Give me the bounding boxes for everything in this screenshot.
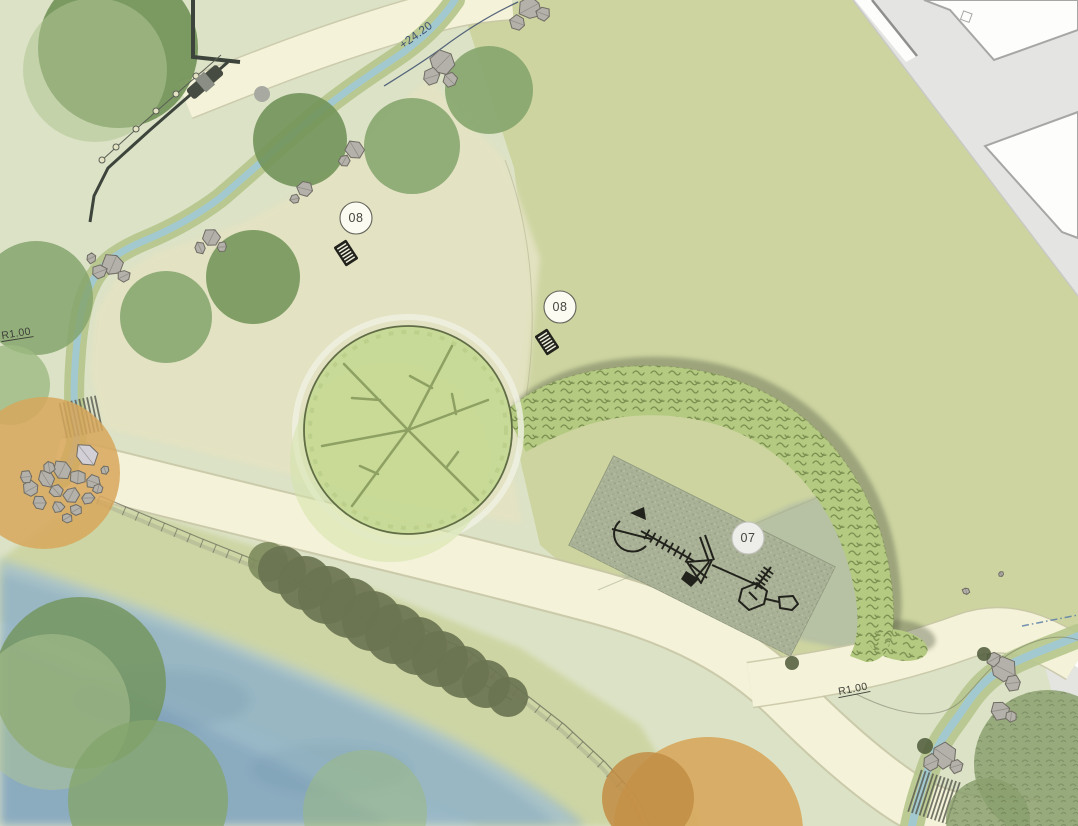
- callout-label: 07: [741, 531, 756, 545]
- site-plan-canvas: 080807 +24.20R1.00R1.00: [0, 0, 1078, 826]
- callout-badge: 08: [544, 291, 576, 323]
- tree-canopy: [120, 271, 212, 363]
- callout-label: 08: [349, 211, 364, 225]
- tree-canopy: [253, 93, 347, 187]
- bush: [977, 647, 991, 661]
- callout-badge: 07: [732, 522, 764, 554]
- shrub-dot: [254, 86, 270, 102]
- tree-canopy: [445, 46, 533, 134]
- rock: [63, 514, 72, 523]
- bush: [917, 738, 933, 754]
- callout-label: 08: [553, 300, 568, 314]
- tree-canopy: [364, 98, 460, 194]
- callout-badge: 08: [340, 202, 372, 234]
- bush: [785, 656, 799, 670]
- shrub-blob: [488, 677, 528, 717]
- site-plan: 080807 +24.20R1.00R1.00: [0, 0, 1078, 826]
